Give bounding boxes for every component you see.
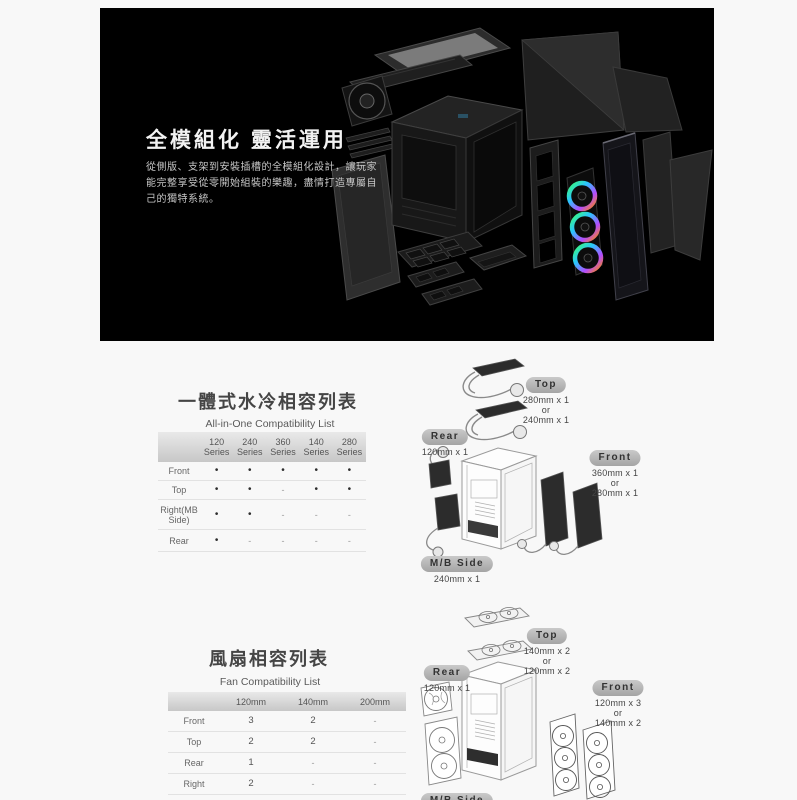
table-row: Rear1-- — [168, 753, 406, 774]
table-cell: - — [344, 758, 406, 768]
table-cell: • — [333, 485, 366, 495]
aio-label-mb-side: M/B Side 240mm x 1 — [421, 553, 493, 584]
table-cell: • — [233, 510, 266, 520]
row-label: Rear — [158, 536, 200, 546]
hero-title: 全模組化 靈活運用 — [146, 124, 347, 154]
row-label: Front — [168, 716, 220, 726]
table-cell: • — [200, 466, 233, 476]
column-header: 140 Series — [300, 435, 333, 459]
table-cell: • — [200, 536, 233, 546]
table-row: Top••-•• — [158, 481, 366, 500]
table-cell: - — [333, 536, 366, 546]
row-label: Top — [158, 485, 200, 495]
row-label: Top — [168, 737, 220, 747]
fan-label-top: Top 140mm x 2or120mm x 2 — [524, 625, 570, 676]
table-row: Front32- — [168, 711, 406, 732]
table-header-row: 120mm140mm200mm — [168, 692, 406, 711]
row-label: Front — [158, 466, 200, 476]
table-cell: 2 — [282, 737, 344, 747]
radiator-mb-side — [435, 494, 460, 530]
fan-label-top-badge: Top — [527, 628, 567, 644]
row-label: Right(MB Side) — [158, 505, 200, 525]
aio-section-title: 一體式水冷相容列表 — [178, 388, 358, 414]
column-header: 360 Series — [266, 435, 299, 459]
fan-label-rear-lines: 120mm x 1 — [424, 683, 470, 693]
table-cell: - — [266, 485, 299, 495]
aio-label-rear-lines: 120mm x 1 — [422, 447, 468, 457]
fan-section-subtitle: Fan Compatibility List — [220, 676, 320, 688]
table-row: Right2-- — [168, 774, 406, 795]
hero-section: 全模組化 靈活運用 從側版、支架到安裝插槽的全模組化設計，讓玩家能完整享受從零開… — [100, 8, 714, 341]
table-cell: - — [282, 779, 344, 789]
table-cell: - — [282, 758, 344, 768]
column-header: 120 Series — [200, 435, 233, 459]
table-cell: - — [266, 536, 299, 546]
row-label: Right — [168, 779, 220, 789]
fan-label-front-badge: Front — [592, 680, 643, 696]
table-cell: - — [300, 536, 333, 546]
case-outline — [462, 448, 536, 549]
aio-label-front-badge: Front — [589, 450, 640, 466]
table-cell: 2 — [220, 737, 282, 747]
column-header: 140mm — [282, 695, 344, 709]
fan-label-rear: Rear 120mm x 1 — [424, 662, 470, 693]
table-cell: - — [344, 779, 406, 789]
aio-label-top-badge: Top — [526, 377, 566, 393]
table-cell: • — [333, 466, 366, 476]
aio-compatibility-table: 120 Series240 Series360 Series140 Series… — [158, 432, 366, 552]
fan-compatibility-table: 120mm140mm200mmFront32-Top22-Rear1--Righ… — [168, 692, 406, 795]
fan-label-mb-side-badge: M/B Side — [421, 793, 493, 800]
radiator-front-1 — [541, 472, 568, 546]
radiator-top-2 — [476, 401, 527, 418]
radiator-top-1 — [473, 359, 524, 376]
table-cell: • — [200, 485, 233, 495]
table-cell: - — [333, 510, 366, 520]
radiator-rear — [429, 460, 451, 488]
table-cell: - — [344, 716, 406, 726]
table-cell: - — [233, 536, 266, 546]
fan-label-rear-badge: Rear — [424, 665, 470, 681]
table-row: Rear•---- — [158, 530, 366, 552]
fan-label-top-lines: 140mm x 2or120mm x 2 — [524, 646, 570, 676]
table-cell: • — [300, 485, 333, 495]
product-page: 全模組化 靈活運用 從側版、支架到安裝插槽的全模組化設計，讓玩家能完整享受從零開… — [0, 0, 797, 800]
aio-label-top-lines: 280mm x 1or240mm x 1 — [523, 395, 569, 425]
table-cell: • — [200, 510, 233, 520]
aio-section-subtitle: All-in-One Compatibility List — [206, 418, 335, 430]
column-header: 280 Series — [333, 435, 366, 459]
aio-label-mb-side-badge: M/B Side — [421, 556, 493, 572]
table-cell: 2 — [220, 779, 282, 789]
table-cell: • — [233, 485, 266, 495]
table-cell: • — [266, 466, 299, 476]
table-row: Front••••• — [158, 462, 366, 481]
table-cell: - — [344, 737, 406, 747]
fan-section-title: 風扇相容列表 — [209, 645, 329, 671]
table-cell: • — [300, 466, 333, 476]
table-cell: 3 — [220, 716, 282, 726]
row-label: Rear — [168, 758, 220, 768]
table-cell: 2 — [282, 716, 344, 726]
aio-label-front-lines: 360mm x 1or280mm x 1 — [589, 468, 640, 498]
fan-label-front-lines: 120mm x 3or140mm x 2 — [592, 698, 643, 728]
aio-label-rear-badge: Rear — [422, 429, 468, 445]
table-header-row: 120 Series240 Series360 Series140 Series… — [158, 432, 366, 462]
column-header: 240 Series — [233, 435, 266, 459]
aio-label-rear: Rear 120mm x 1 — [422, 426, 468, 457]
table-row: Top22- — [168, 732, 406, 753]
aio-label-top: Top 280mm x 1or240mm x 1 — [523, 374, 569, 425]
fan-label-front: Front 120mm x 3or140mm x 2 — [592, 677, 643, 728]
exploded-case-illustration — [330, 10, 714, 338]
column-header: 200mm — [344, 695, 406, 709]
table-cell: - — [266, 510, 299, 520]
table-cell: • — [233, 466, 266, 476]
table-cell: - — [300, 510, 333, 520]
aio-label-mb-side-lines: 240mm x 1 — [421, 574, 493, 584]
hero-description: 從側版、支架到安裝插槽的全模組化設計，讓玩家能完整享受從零開始組裝的樂趣，盡情打… — [146, 160, 386, 208]
aio-label-front: Front 360mm x 1or280mm x 1 — [589, 447, 640, 498]
table-row: Right(MB Side)••--- — [158, 500, 366, 530]
fan-label-mb-side: M/B Side — [421, 790, 493, 800]
table-cell: 1 — [220, 758, 282, 768]
column-header: 120mm — [220, 695, 282, 709]
